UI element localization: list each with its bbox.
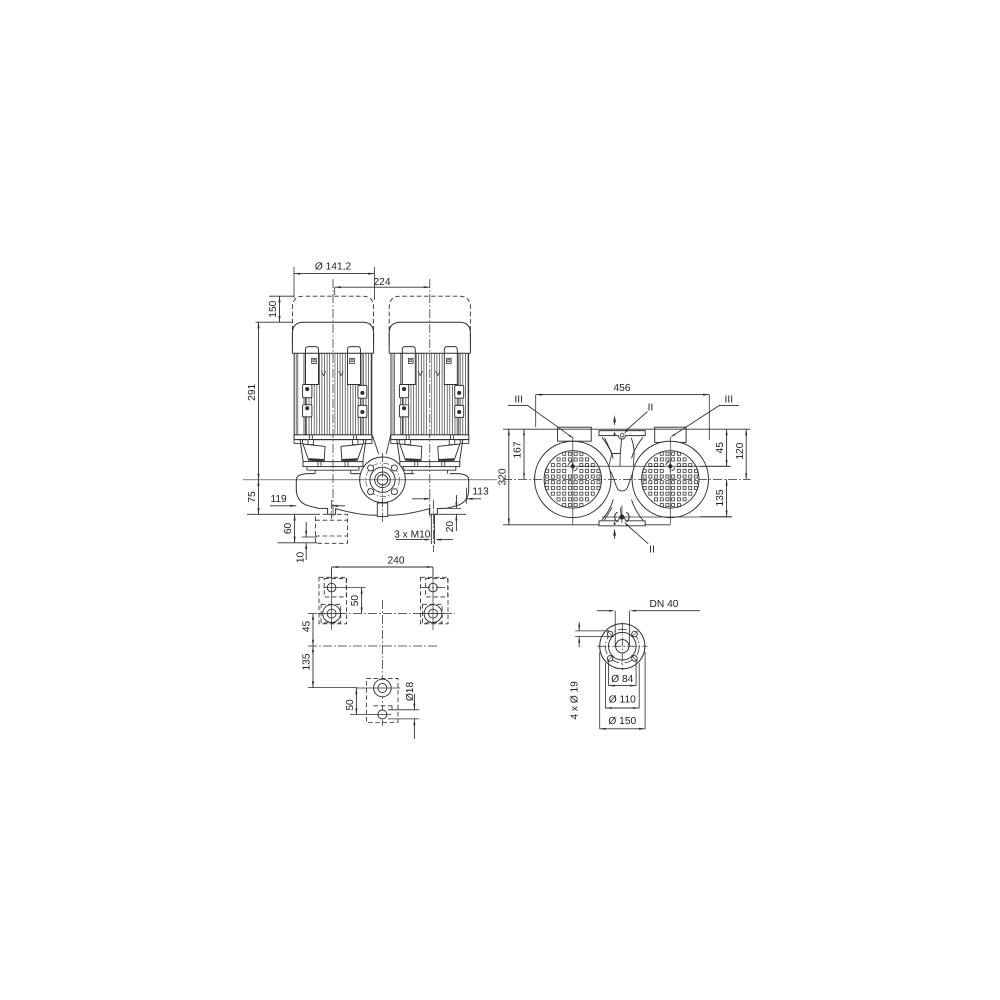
svg-text:135: 135 [715, 489, 726, 506]
svg-text:113: 113 [472, 486, 489, 497]
svg-text:320: 320 [497, 468, 508, 485]
svg-text:50: 50 [350, 595, 361, 607]
svg-text:45: 45 [715, 442, 726, 454]
svg-text:4 x Ø 19: 4 x Ø 19 [569, 681, 580, 720]
svg-text:120: 120 [735, 442, 746, 459]
svg-text:240: 240 [388, 555, 405, 566]
svg-text:150: 150 [268, 300, 279, 317]
svg-text:Ø 84: Ø 84 [611, 674, 633, 685]
svg-text:456: 456 [614, 383, 631, 394]
svg-text:Ø 110: Ø 110 [609, 694, 636, 705]
svg-text:135: 135 [302, 653, 313, 670]
svg-text:60: 60 [283, 523, 294, 535]
svg-text:291: 291 [247, 383, 258, 400]
svg-text:45: 45 [302, 621, 313, 633]
svg-text:DN 40: DN 40 [650, 599, 679, 610]
svg-text:10: 10 [296, 552, 307, 564]
svg-text:II: II [649, 545, 655, 556]
svg-text:III: III [725, 395, 734, 406]
svg-text:119: 119 [270, 494, 287, 505]
svg-text:75: 75 [247, 491, 258, 503]
svg-text:167: 167 [513, 441, 524, 458]
svg-text:III: III [514, 395, 523, 406]
svg-text:II: II [648, 402, 654, 413]
svg-text:Ø 150: Ø 150 [608, 716, 636, 727]
svg-text:Ø18: Ø18 [405, 682, 416, 702]
svg-text:50: 50 [345, 699, 356, 711]
svg-text:224: 224 [374, 277, 391, 288]
svg-text:20: 20 [445, 521, 456, 533]
svg-text:Ø 141,2: Ø 141,2 [315, 262, 352, 273]
